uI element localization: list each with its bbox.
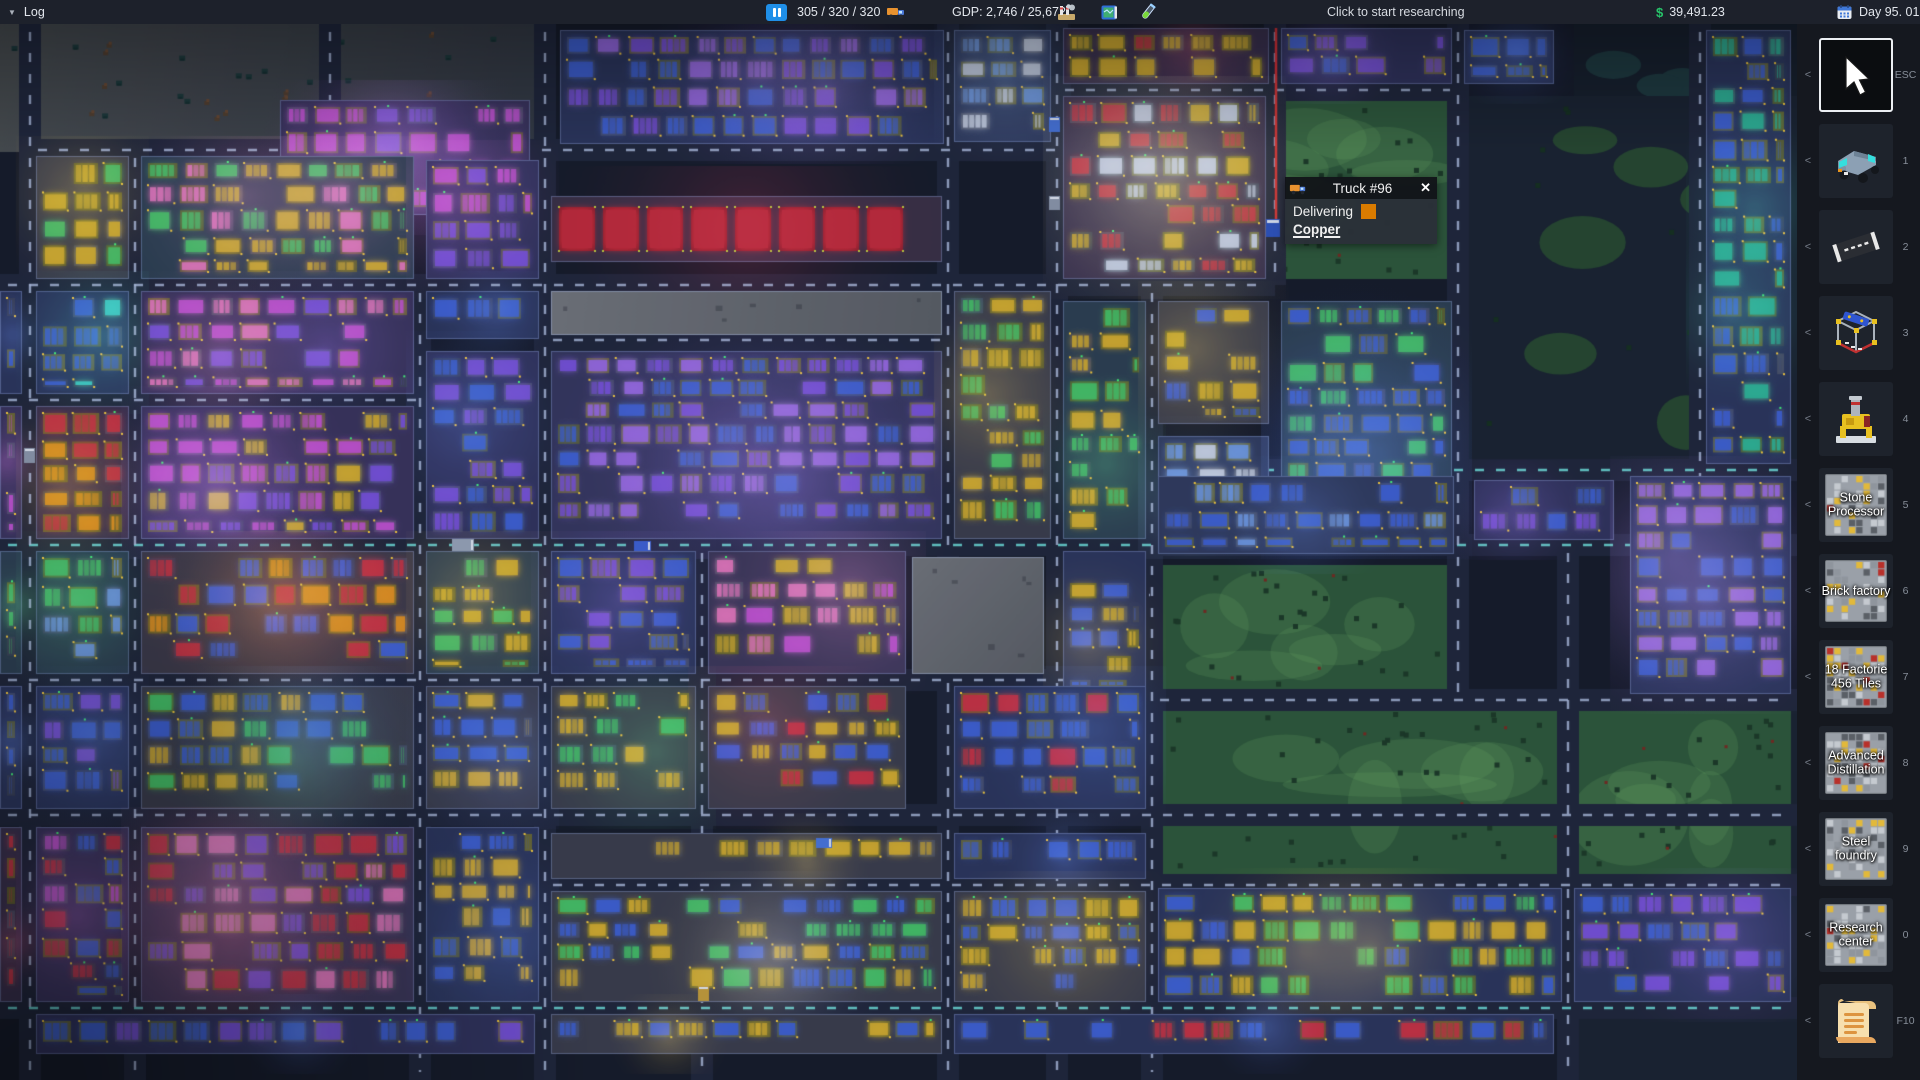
collapse-chevron-icon[interactable]: <	[1797, 585, 1819, 597]
map-book-icon[interactable]	[1100, 4, 1119, 21]
sidebar-row-factories: < 18 Factorie 456 Tiles 7	[1797, 640, 1920, 714]
collapse-chevron-icon[interactable]: <	[1797, 327, 1819, 339]
hotkey-label: 1	[1893, 155, 1918, 168]
sidebar-row-mine: < 4	[1797, 382, 1920, 456]
cursor-icon	[1833, 52, 1879, 98]
road-icon	[1829, 224, 1883, 270]
log-collapse-icon: ▼	[8, 8, 16, 17]
money-display: $ 39,491.23	[1656, 0, 1725, 24]
log-label: Log	[24, 5, 45, 19]
hotkey-label: ESC	[1893, 69, 1918, 82]
mining-drill-icon	[1830, 392, 1882, 446]
sidebar-row-research-center: < Research center 0	[1797, 898, 1920, 972]
hotkey-label: 7	[1893, 671, 1918, 684]
factory-toolbar	[1056, 0, 1077, 24]
collapse-chevron-icon[interactable]: <	[1797, 155, 1819, 167]
sidebar-row-stone-processor: < Stone Processor 5	[1797, 468, 1920, 542]
tooltip-header[interactable]: Truck #96 ✕	[1285, 177, 1437, 199]
tooltip-cargo: Copper	[1293, 221, 1429, 239]
hotkey-label: 5	[1893, 499, 1918, 512]
collapse-chevron-icon[interactable]: <	[1797, 843, 1819, 855]
collapse-chevron-icon[interactable]: <	[1797, 241, 1819, 253]
collapse-chevron-icon[interactable]: <	[1797, 1015, 1819, 1027]
collapse-chevron-icon[interactable]: <	[1797, 757, 1819, 769]
vehicles-tool-button[interactable]	[1819, 124, 1893, 198]
hotkey-label: 4	[1893, 413, 1918, 426]
collapse-chevron-icon[interactable]: <	[1797, 929, 1819, 941]
sidebar-row-select: < ESC	[1797, 38, 1920, 112]
road-tool-button[interactable]	[1819, 210, 1893, 284]
truck-icon	[1289, 182, 1307, 195]
factories-blueprint-button[interactable]: 18 Factorie 456 Tiles	[1819, 640, 1893, 714]
hotkey-label: 2	[1893, 241, 1918, 254]
select-tool-button[interactable]	[1819, 38, 1893, 112]
vehicle-count: 305 / 320 / 320	[797, 0, 906, 24]
gdp-stat: GDP: 2,746 / 25,672	[952, 0, 1066, 24]
blueprint-thumbnail	[1825, 560, 1887, 622]
tooltip-status: Delivering	[1293, 204, 1353, 219]
copper-cargo-icon	[1361, 204, 1376, 219]
hotkey-label: 9	[1893, 843, 1918, 856]
game-map[interactable]	[0, 24, 1797, 1080]
truck-icon	[886, 5, 906, 19]
blueprint-thumbnail	[1825, 818, 1887, 880]
mine-tool-button[interactable]	[1819, 382, 1893, 456]
stone-processor-button[interactable]: Stone Processor	[1819, 468, 1893, 542]
map-book	[1100, 0, 1119, 24]
pause-control	[766, 0, 787, 24]
collapse-chevron-icon[interactable]: <	[1797, 499, 1819, 511]
steel-foundry-button[interactable]: Steel foundry	[1819, 812, 1893, 886]
research-hint[interactable]: Click to start researching	[1327, 0, 1465, 24]
sidebar-row-steel-foundry: < Steel foundry 9	[1797, 812, 1920, 886]
collapse-chevron-icon[interactable]: <	[1797, 671, 1819, 683]
close-icon[interactable]: ✕	[1418, 180, 1433, 196]
blueprint-thumbnail	[1825, 732, 1887, 794]
collapse-chevron-icon[interactable]: <	[1797, 69, 1819, 81]
blueprint-thumbnail	[1825, 474, 1887, 536]
top-bar: ▼ Log 305 / 320 / 320 GDP: 2,746 / 25,67…	[0, 0, 1920, 24]
test-tube-icon[interactable]	[1138, 3, 1157, 21]
tool-sidebar: < ESC <	[1797, 24, 1920, 1080]
sidebar-row-log-scroll: < F10	[1797, 984, 1920, 1058]
sidebar-row-road: < 2	[1797, 210, 1920, 284]
research-center-button[interactable]: Research center	[1819, 898, 1893, 972]
brick-factory-button[interactable]: Brick factory	[1819, 554, 1893, 628]
truck-tooltip: Truck #96 ✕ Delivering Copper	[1285, 177, 1437, 244]
hotkey-label: 3	[1893, 327, 1918, 340]
construction-tool-button[interactable]	[1819, 296, 1893, 370]
tooltip-body: Delivering Copper	[1285, 199, 1437, 244]
date-value: Day 95. 01:20	[1859, 5, 1920, 19]
advanced-distillation-button[interactable]: Advanced Distillation	[1819, 726, 1893, 800]
money-value: 39,491.23	[1669, 5, 1725, 19]
pause-button[interactable]	[766, 4, 787, 21]
sidebar-row-construction: <	[1797, 296, 1920, 370]
sidebar-row-vehicles: < 1	[1797, 124, 1920, 198]
blueprint-thumbnail	[1825, 904, 1887, 966]
hotkey-label: 8	[1893, 757, 1918, 770]
tooltip-title: Truck #96	[1307, 181, 1418, 196]
collapse-chevron-icon[interactable]: <	[1797, 413, 1819, 425]
date-display: Day 95. 01:20	[1836, 0, 1920, 24]
calendar-icon	[1836, 4, 1853, 20]
sidebar-row-advanced-distillation: < Advanced Distillation 8	[1797, 726, 1920, 800]
truck-3d-icon	[1830, 137, 1882, 185]
hotkey-label: 0	[1893, 929, 1918, 942]
dollar-icon: $	[1656, 5, 1663, 20]
scroll-icon	[1828, 993, 1884, 1049]
log-scroll-button[interactable]	[1819, 984, 1893, 1058]
hotkey-label: F10	[1893, 1015, 1918, 1028]
factory-icon[interactable]	[1056, 4, 1077, 21]
construction-frame-icon	[1829, 306, 1883, 360]
sidebar-row-brick-factory: < Brick factory 6	[1797, 554, 1920, 628]
hotkey-label: 6	[1893, 585, 1918, 598]
log-toggle[interactable]: ▼ Log	[8, 0, 45, 24]
blueprint-thumbnail	[1825, 646, 1887, 708]
game-window: ▼ Log 305 / 320 / 320 GDP: 2,746 / 25,67…	[0, 0, 1920, 1080]
research-tube	[1138, 0, 1157, 24]
